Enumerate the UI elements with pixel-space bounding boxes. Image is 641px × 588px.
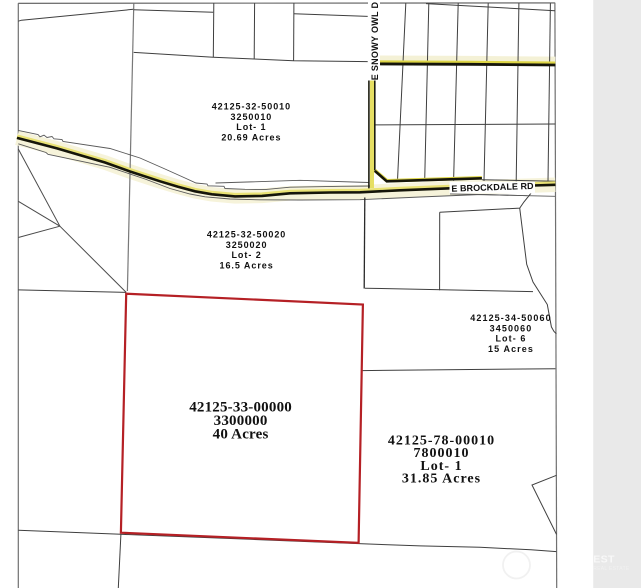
svg-text:3250010: 3250010 <box>231 112 273 122</box>
svg-text:Lot- 1: Lot- 1 <box>236 122 266 132</box>
svg-text:42125-34-50060: 42125-34-50060 <box>470 313 551 323</box>
svg-text:REAL ESTATE: REAL ESTATE <box>593 566 630 572</box>
svg-text:42125-32-50020: 42125-32-50020 <box>207 230 286 240</box>
svg-text:40 Acres: 40 Acres <box>213 426 269 442</box>
svg-text:15 Acres: 15 Acres <box>488 344 534 354</box>
svg-text:Lot- 6: Lot- 6 <box>495 334 526 344</box>
svg-text:3250020: 3250020 <box>226 240 268 250</box>
svg-text:16.5 Acres: 16.5 Acres <box>219 261 273 271</box>
svg-text:31.85 Acres: 31.85 Acres <box>402 472 481 487</box>
svg-text:EST: EST <box>593 554 615 566</box>
svg-text:20.69 Acres: 20.69 Acres <box>221 133 281 143</box>
svg-text:42125-32-50010: 42125-32-50010 <box>212 102 291 112</box>
svg-text:E SNOWY OWL D: E SNOWY OWL D <box>370 2 380 81</box>
svg-text:Lot- 2: Lot- 2 <box>231 250 261 260</box>
svg-text:3450060: 3450060 <box>490 323 533 333</box>
